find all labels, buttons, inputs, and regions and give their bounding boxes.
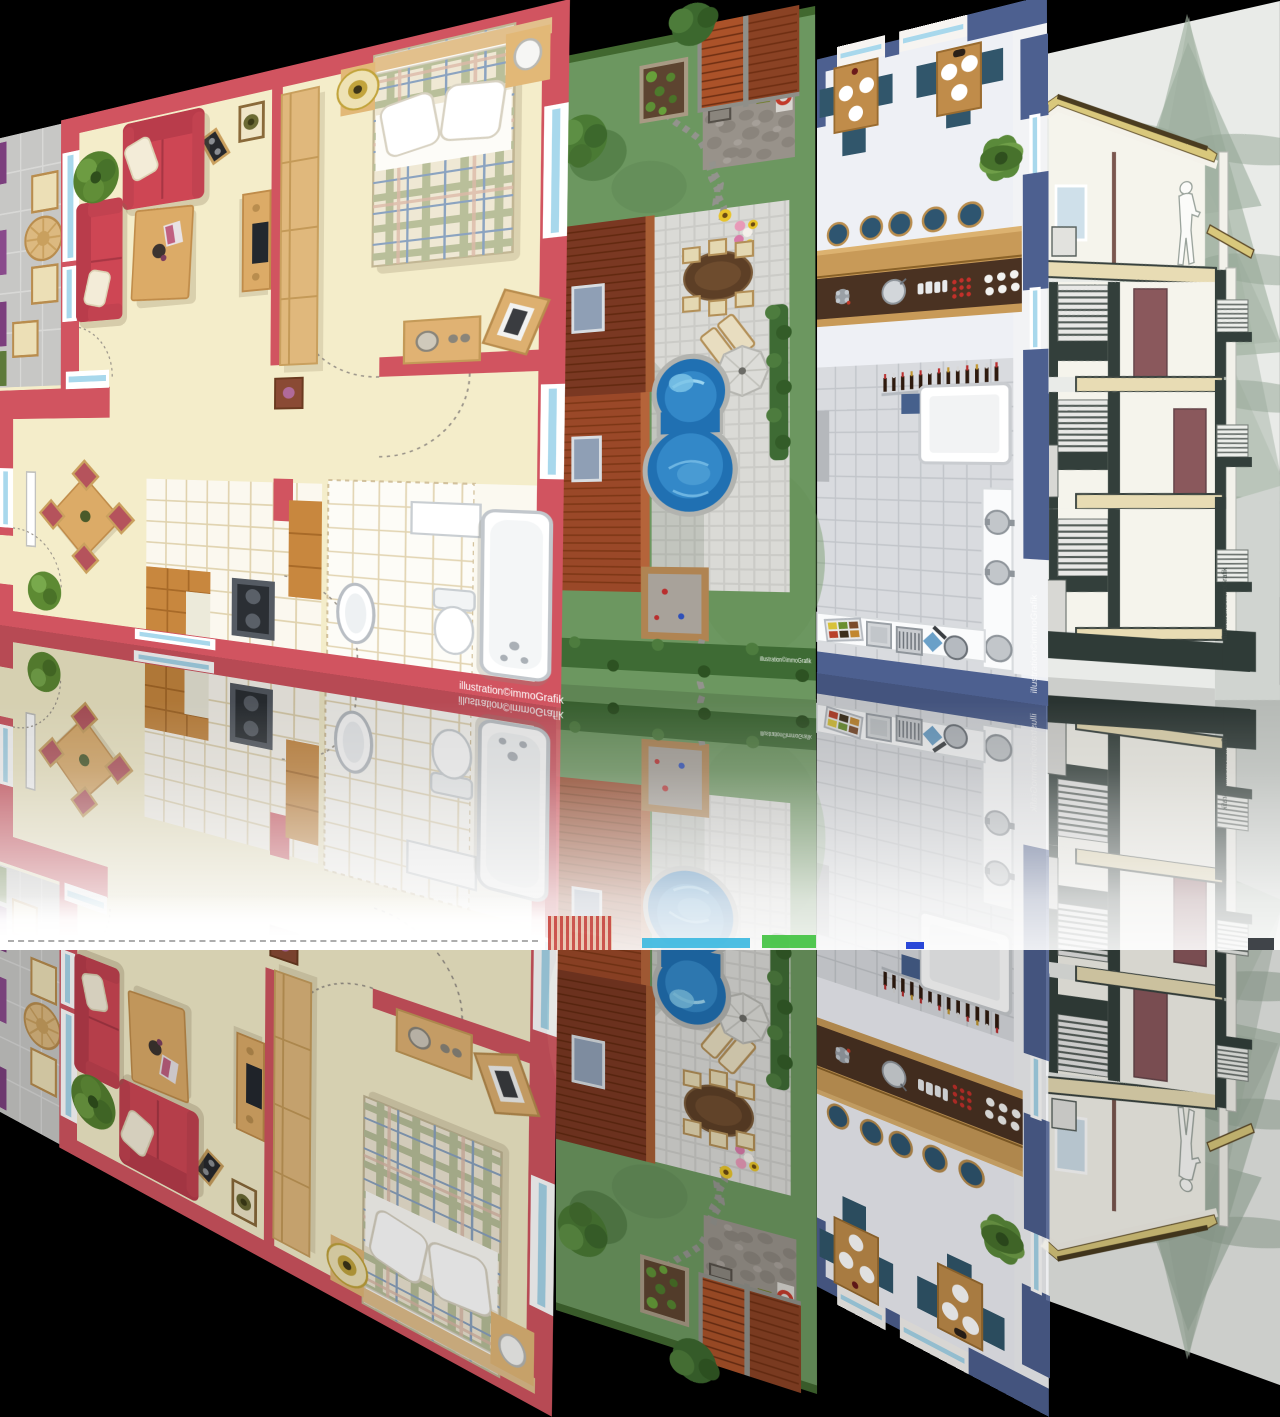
svg-text:illustration©immoGrafik: illustration©immoGrafik [1029, 594, 1040, 694]
svg-text:illustration©immoGrafik: illustration©immoGrafik [1220, 567, 1230, 640]
